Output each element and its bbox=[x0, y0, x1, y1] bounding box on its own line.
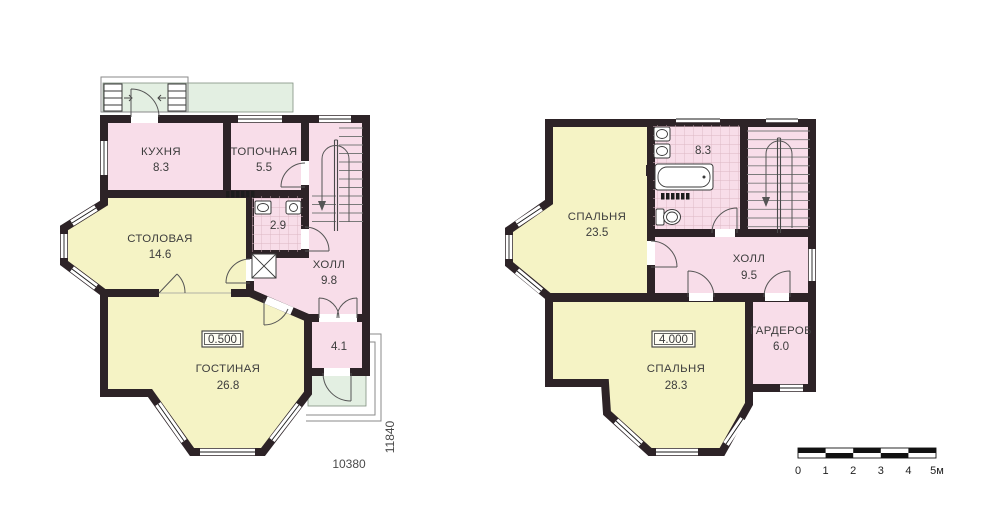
scale-label: 0 bbox=[795, 465, 801, 477]
dining-label: СТОЛОВАЯ bbox=[127, 233, 193, 245]
elevation-mark-floor1: 0.500 bbox=[202, 331, 243, 347]
kitchen-label: КУХНЯ bbox=[141, 146, 181, 158]
dimension-height: 11840 bbox=[383, 420, 397, 453]
toilet-icon bbox=[656, 209, 681, 225]
hall1-label: ХОЛЛ bbox=[313, 259, 346, 271]
scale-label: 2 bbox=[850, 465, 856, 477]
porch bbox=[308, 372, 366, 406]
scale-label: 5м bbox=[930, 465, 944, 477]
room-bedroom2 bbox=[549, 298, 749, 452]
bedroom1-label: СПАЛЬНЯ bbox=[568, 211, 626, 223]
floor1-plan: 0.500 КУХНЯ 8.3 ТОПОЧНАЯ 5.5 СТОЛОВАЯ 14… bbox=[64, 77, 397, 471]
boiler-area: 5.5 bbox=[256, 161, 272, 174]
tambour-area: 4.1 bbox=[331, 340, 347, 353]
scale-label: 4 bbox=[905, 465, 911, 477]
bedroom2-label: СПАЛЬНЯ bbox=[647, 363, 705, 375]
dimension-width: 10380 bbox=[332, 457, 366, 471]
hall2-area: 9.5 bbox=[741, 269, 757, 282]
wc-area: 2.9 bbox=[270, 219, 286, 232]
elevation-mark-floor2: 4.000 bbox=[652, 331, 695, 347]
wall-pier bbox=[646, 165, 655, 176]
toilet-icon bbox=[286, 201, 301, 214]
elevation-value: 4.000 bbox=[659, 333, 688, 346]
dining-area: 14.6 bbox=[149, 248, 172, 261]
floor2-plan: 4.000 СПАЛЬНЯ 23.5 8.3 ХОЛЛ 9.5 СПАЛЬНЯ … bbox=[509, 119, 812, 452]
scale-label: 3 bbox=[878, 465, 884, 477]
kitchen-area: 8.3 bbox=[153, 161, 169, 174]
terrace bbox=[101, 77, 293, 112]
wardrobe-area: 6.0 bbox=[773, 340, 789, 353]
room-hall2 bbox=[651, 233, 812, 297]
floor-plan-sheet: 0.500 КУХНЯ 8.3 ТОПОЧНАЯ 5.5 СТОЛОВАЯ 14… bbox=[0, 0, 1000, 530]
hall1-area: 9.8 bbox=[321, 274, 337, 287]
scale-label: 1 bbox=[823, 465, 829, 477]
elevation-value: 0.500 bbox=[208, 333, 237, 346]
hall2-label: ХОЛЛ bbox=[733, 253, 766, 265]
living-label: ГОСТИНАЯ bbox=[196, 363, 261, 375]
scale-bar: 0 1 2 3 4 5м bbox=[795, 448, 944, 477]
bedroom1-area: 23.5 bbox=[586, 226, 609, 239]
living-area: 26.8 bbox=[217, 379, 240, 392]
room-bedroom1 bbox=[509, 123, 651, 297]
bathroom-area: 8.3 bbox=[695, 144, 711, 157]
wardrobe-label: ГАРДЕРОБ bbox=[750, 325, 812, 337]
floor-plan-drawing: 0.500 КУХНЯ 8.3 ТОПОЧНАЯ 5.5 СТОЛОВАЯ 14… bbox=[0, 0, 1000, 530]
boiler-label: ТОПОЧНАЯ bbox=[231, 146, 298, 158]
bedroom2-area: 28.3 bbox=[665, 379, 688, 392]
